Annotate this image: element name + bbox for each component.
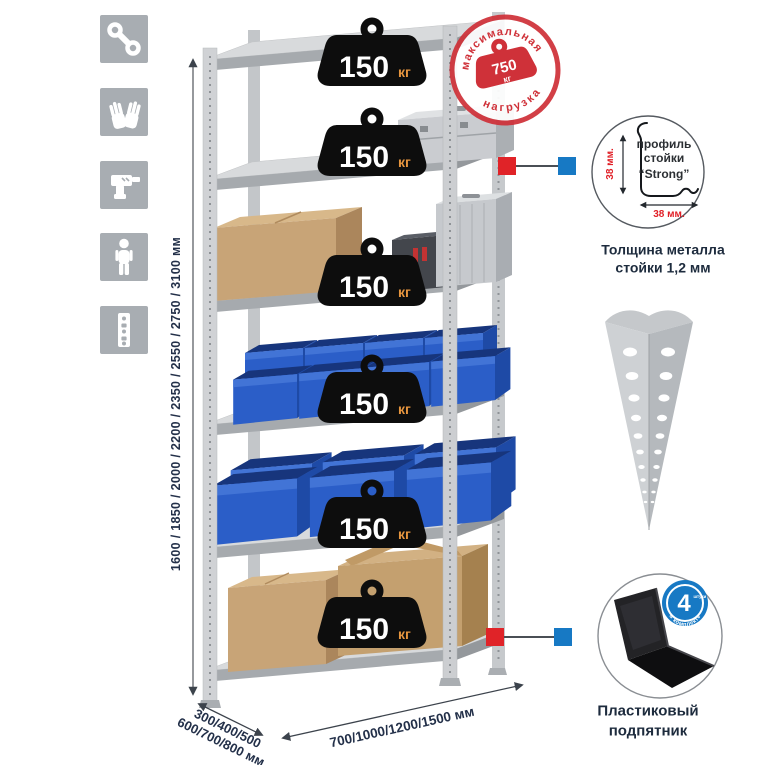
height-dimension-label: 1600 / 1850 / 2000 / 2200 / 2350 / 2550 … [169, 237, 183, 571]
load-unit: кг [398, 284, 411, 300]
load-value: 150 [339, 613, 389, 646]
product-diagram: 150 кг 150 кг 150 кг 150 кг 150 кг 150 к… [0, 0, 765, 765]
load-unit: кг [398, 526, 411, 542]
profile-detail-circle: 38 мм. 38 мм. профиль стойки “Strong” [592, 116, 704, 228]
load-value: 150 [339, 271, 389, 304]
shelving-illustration: 150 кг 150 кг 150 кг 150 кг 150 кг 150 к… [0, 0, 765, 765]
red-marker [486, 628, 504, 646]
profile-caption-line1: Толщина металла [601, 242, 725, 260]
profile-dim-horizontal: 38 мм. [653, 209, 685, 220]
callout-connector-top [498, 157, 576, 175]
foot-caption-line1: Пластиковый [597, 702, 698, 722]
callout-connector-bottom [486, 628, 572, 646]
load-value: 150 [339, 141, 389, 174]
profile-caption: Толщина металла стойки 1,2 мм [601, 242, 725, 277]
qty-value: 4 [677, 590, 691, 617]
load-unit: кг [398, 154, 411, 170]
corner-post-image [605, 310, 693, 530]
profile-label-3: “Strong” [639, 167, 690, 181]
load-unit: кг [398, 401, 411, 417]
load-value: 150 [339, 388, 389, 421]
load-value: 150 [339, 51, 389, 84]
qty-word: штуки [694, 594, 707, 599]
load-unit: кг [398, 64, 411, 80]
profile-label-1: профиль [637, 137, 692, 151]
red-marker [498, 157, 516, 175]
blue-marker [554, 628, 572, 646]
blue-marker [558, 157, 576, 175]
post-back-left [248, 30, 260, 660]
load-value: 150 [339, 513, 389, 546]
profile-dim-vertical: 38 мм. [605, 148, 616, 180]
post-front-right [443, 26, 457, 682]
foot-caption-line2: подпятник [597, 721, 698, 741]
icon-column [100, 15, 148, 354]
drill-icon [100, 161, 148, 209]
post-front-left [203, 48, 217, 704]
profile-caption-line2: стойки 1,2 мм [601, 259, 725, 277]
wrench-icon [100, 15, 148, 63]
upright-profile-icon [100, 306, 148, 354]
gloves-icon [100, 88, 148, 136]
foot-caption: Пластиковый подпятник [597, 702, 698, 741]
person-icon [100, 233, 148, 281]
load-unit: кг [398, 626, 411, 642]
profile-label-2: стойки [644, 151, 684, 165]
